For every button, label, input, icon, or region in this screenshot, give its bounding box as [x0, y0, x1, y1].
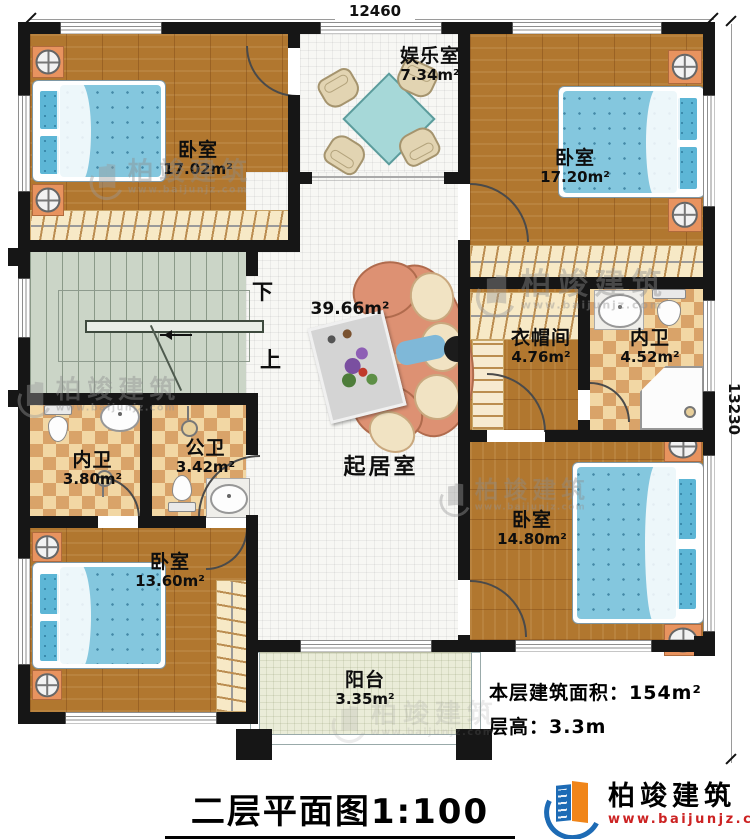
window-symbol	[512, 22, 662, 34]
room-label-cloakroom: 衣帽间 4.76m²	[482, 328, 600, 366]
window-symbol	[18, 278, 30, 338]
stair-handrail	[85, 320, 264, 333]
room-label-entertainment: 娱乐室 7.34m²	[370, 46, 490, 84]
wall-segment	[288, 172, 312, 184]
wall-segment	[18, 516, 98, 528]
room-label-bedroom-tl: 卧室 17.02m²	[138, 140, 258, 178]
sliding-track	[312, 180, 444, 181]
stair-down-label: 下	[252, 276, 273, 306]
wall-segment	[138, 516, 206, 528]
wall-segment	[258, 640, 300, 652]
nightstand-symbol	[32, 670, 62, 700]
window-symbol	[515, 640, 652, 652]
wardrobe-bedroom-tl	[30, 210, 290, 242]
wall-segment	[8, 248, 30, 266]
floor-height-text: 层高：3.3m	[489, 712, 606, 739]
wall-segment	[246, 252, 258, 276]
brand-logo: 柏竣建筑 www.baijunjz.com	[542, 776, 750, 834]
wall-segment	[288, 22, 300, 48]
floor-area-text: 本层建筑面积：154m²	[489, 678, 702, 705]
window-symbol	[300, 640, 432, 652]
sheet-title: 二层平面图1:100	[165, 784, 515, 839]
ceiling-lamp-symbol	[187, 406, 189, 420]
wall-segment	[430, 640, 458, 652]
room-label-bedroom-tr: 卧室 17.20m²	[515, 148, 635, 186]
sink-symbol	[598, 294, 642, 328]
room-label-living-area: 39.66m²	[300, 300, 400, 319]
balcony-railing	[250, 734, 482, 745]
wardrobe-bedroom-tr	[470, 245, 705, 279]
wall-segment	[578, 420, 590, 430]
wall-segment	[545, 430, 715, 442]
wall-segment	[458, 430, 487, 442]
ceiling-lamp-symbol	[181, 420, 198, 437]
wall-segment	[18, 240, 300, 252]
nightstand-symbol	[32, 532, 62, 562]
nightstand-symbol	[668, 198, 702, 232]
room-label-living: 起居室	[321, 456, 441, 481]
right-dimension-value: 13230	[725, 379, 743, 439]
nightstand-symbol	[668, 50, 702, 84]
window-symbol	[65, 712, 217, 724]
stair-up-label: 上	[260, 344, 281, 374]
wardrobe-bedroom-bl	[216, 580, 248, 712]
sliding-track	[312, 176, 444, 178]
room-label-balcony: 阳台 3.35m²	[305, 670, 425, 708]
wall-segment	[246, 515, 258, 712]
brand-name: 柏竣建筑	[608, 783, 750, 811]
room-label-bath-public: 公卫 3.42m²	[153, 438, 258, 476]
window-symbol	[703, 95, 715, 207]
wall-segment	[8, 390, 30, 407]
window-symbol	[320, 22, 442, 34]
room-label-bedroom-br: 卧室 14.80m²	[472, 510, 592, 548]
brand-url: www.baijunjz.com	[608, 812, 750, 827]
window-symbol	[18, 558, 30, 665]
wall-segment	[458, 635, 470, 652]
room-label-bedroom-bl: 卧室 13.60m²	[110, 552, 230, 590]
top-dimension-value: 12460	[335, 2, 415, 20]
nightstand-symbol	[32, 184, 64, 216]
floor-plan-canvas: 12460 13230	[0, 0, 750, 839]
stair-direction-arrow	[160, 334, 192, 336]
room-label-bath-right: 内卫 4.52m²	[590, 328, 710, 366]
balcony-column	[236, 729, 272, 760]
room-label-bath-left: 内卫 3.80m²	[40, 450, 145, 488]
wall-segment	[458, 240, 470, 580]
sink-symbol	[100, 402, 140, 432]
wall-segment	[694, 636, 715, 656]
toilet-symbol	[44, 405, 72, 445]
wall-segment	[458, 277, 715, 289]
brand-logo-icon	[542, 776, 600, 834]
nightstand-symbol	[32, 46, 64, 78]
window-symbol	[703, 455, 715, 632]
window-symbol	[60, 22, 162, 34]
wall-segment	[18, 393, 258, 405]
window-symbol	[18, 95, 30, 192]
floor-drain-symbol	[684, 406, 696, 418]
balcony-column	[456, 729, 492, 760]
